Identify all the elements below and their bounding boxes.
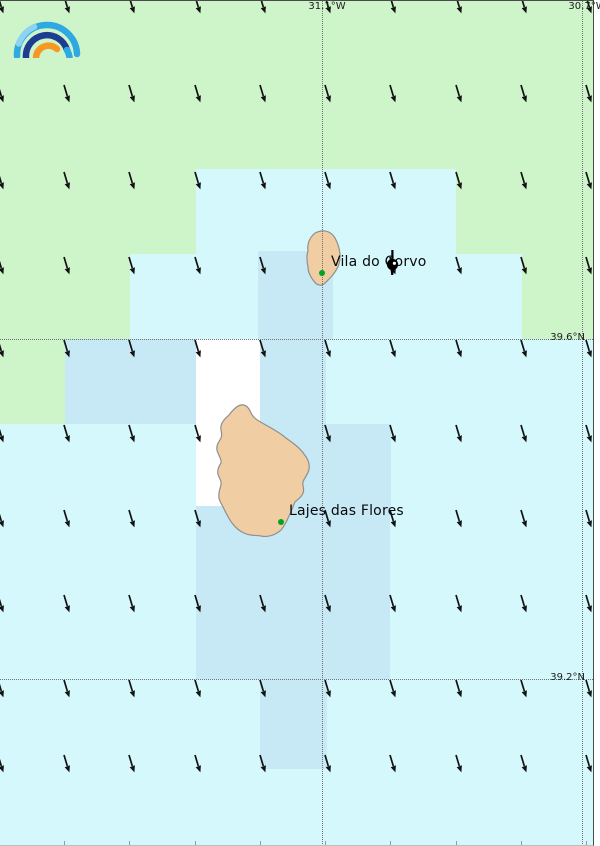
graticule-line [322,1,323,846]
logo-inner-arc [36,46,57,58]
logo-middle-arc-tail [67,50,70,57]
map-canvas[interactable]: Vila do Corvo Lajes das Flores [0,0,594,846]
axis-tick [390,841,391,845]
place-label-lajes-das-flores: Lajes das Flores [289,503,404,519]
latitude-label-1: 39.6°N [550,332,585,343]
longitude-label-1: 31.1°W [308,1,345,12]
axis-tick [521,841,522,845]
vila-do-corvo-marker [319,270,325,276]
islands-layer [0,1,593,846]
longitude-label-2: 30.7°W [568,1,600,12]
graticule-line [0,679,593,680]
axis-tick [260,841,261,845]
weather-map-viewport[interactable]: Vila do Corvo Lajes das Flores 31.1°W 30… [0,0,600,846]
screenshot-root: { "colors": { "land_green": "#cef4ca", "… [0,0,600,846]
axis-tick [586,841,587,845]
weather-rainbow-logo [10,14,84,58]
graticule-line [0,339,593,340]
axis-tick [456,841,457,845]
axis-tick [325,841,326,845]
axis-tick [64,841,65,845]
axis-tick [129,841,130,845]
latitude-label-2: 39.2°N [550,672,585,683]
axis-tick [195,841,196,845]
place-label-vila-do-corvo: Vila do Corvo [331,254,427,270]
mouse-cursor [385,250,401,276]
lajes-das-flores-marker [278,519,284,525]
graticule-line [582,1,583,846]
